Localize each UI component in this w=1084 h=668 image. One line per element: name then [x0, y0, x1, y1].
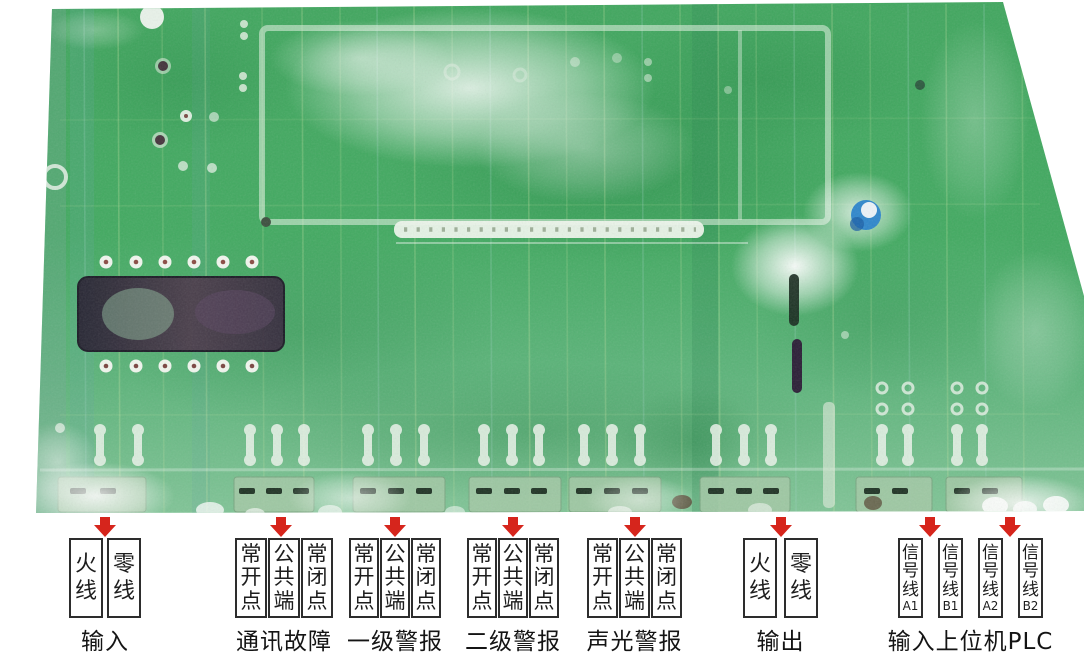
- terminal-box: 常开点: [349, 538, 379, 618]
- terminal-box: 常开点: [467, 538, 497, 618]
- terminal-box-sublabel: A2: [983, 600, 999, 612]
- down-arrow-icon: [269, 517, 293, 537]
- terminal-box-label: 公共端: [623, 543, 646, 614]
- terminal-box-label: 常闭点: [415, 543, 438, 614]
- terminal-group-sound-light-alarm: 常开点 公共端 常闭点 声光警报: [587, 516, 682, 668]
- down-arrow-icon: [93, 517, 117, 537]
- terminal-box-label: 信号线: [981, 544, 999, 599]
- terminal-box-label: 常闭点: [533, 543, 556, 614]
- terminal-box: 公共端: [619, 538, 650, 618]
- terminal-box: 常闭点: [301, 538, 333, 618]
- terminal-box-label: 常开点: [471, 543, 494, 614]
- terminal-box: 常开点: [235, 538, 267, 618]
- terminal-box-label: 常开点: [353, 543, 376, 614]
- terminal-box-label: 信号线: [1021, 544, 1039, 599]
- terminal-group-output: 火线 零线 输出: [743, 516, 818, 668]
- down-arrow-icon: [501, 517, 525, 537]
- terminal-box-label: 公共端: [273, 543, 296, 614]
- terminal-group-plc: 信号线A1 信号线B1 信号线A2 信号线B2 输入上位机PLC: [898, 516, 1043, 668]
- terminal-group-caption: 通讯故障: [236, 622, 332, 656]
- terminal-group-caption: 输入上位机PLC: [888, 622, 1054, 656]
- terminal-group-caption: 二级警报: [465, 622, 561, 656]
- wiring-diagram: 火线 零线 输入 常开点 公共端 常闭点 通讯故障 常开点 公共端 常闭点 一级…: [0, 0, 1084, 668]
- terminal-box-label: 火线: [74, 551, 98, 606]
- terminal-box-sublabel: B1: [943, 600, 959, 612]
- terminal-box-label: 公共端: [384, 543, 407, 614]
- terminal-box: 火线: [743, 538, 777, 618]
- terminal-box: 零线: [107, 538, 141, 618]
- terminal-box-label: 零线: [789, 551, 813, 606]
- terminal-box-sublabel: A1: [903, 600, 919, 612]
- terminal-box: 零线: [784, 538, 818, 618]
- terminal-group-caption: 声光警报: [587, 622, 683, 656]
- down-arrow-icon: [769, 517, 793, 537]
- terminal-box: 信号线A2: [978, 538, 1003, 618]
- terminal-box-label: 常闭点: [306, 543, 329, 614]
- terminal-box: 信号线B2: [1018, 538, 1043, 618]
- terminal-group-caption: 输出: [757, 622, 805, 656]
- terminal-group-alarm-level-2: 常开点 公共端 常闭点 二级警报: [467, 516, 559, 668]
- terminal-box-label: 公共端: [502, 543, 525, 614]
- terminal-box-sublabel: B2: [1023, 600, 1039, 612]
- terminal-box-label: 信号线: [901, 544, 919, 599]
- terminal-box: 公共端: [268, 538, 300, 618]
- photo-grain: [0, 0, 1084, 520]
- terminal-box: 常闭点: [529, 538, 559, 618]
- terminal-box: 常闭点: [651, 538, 682, 618]
- down-arrow-icon: [383, 517, 407, 537]
- down-arrow-icon: [918, 517, 942, 537]
- terminal-box: 信号线A1: [898, 538, 923, 618]
- terminal-group-alarm-level-1: 常开点 公共端 常闭点 一级警报: [349, 516, 441, 668]
- terminal-group-input: 火线 零线 输入: [69, 516, 141, 668]
- terminal-box-label: 常开点: [240, 543, 263, 614]
- terminal-box-label: 火线: [748, 551, 772, 606]
- terminal-group-comm-fault: 常开点 公共端 常闭点 通讯故障: [235, 516, 333, 668]
- terminal-box-label: 零线: [112, 551, 136, 606]
- terminal-group-caption: 一级警报: [347, 622, 443, 656]
- terminal-box-label: 常开点: [591, 543, 614, 614]
- terminal-box-label: 常闭点: [655, 543, 678, 614]
- terminal-box: 公共端: [380, 538, 410, 618]
- down-arrow-icon: [623, 517, 647, 537]
- pcb-photo: [0, 0, 1084, 520]
- terminal-box: 火线: [69, 538, 103, 618]
- down-arrow-icon: [998, 517, 1022, 537]
- terminal-box: 常闭点: [411, 538, 441, 618]
- terminal-box: 信号线B1: [938, 538, 963, 618]
- terminal-box-label: 信号线: [941, 544, 959, 599]
- pcb-board: [0, 0, 1084, 520]
- terminal-box: 常开点: [587, 538, 618, 618]
- terminal-box: 公共端: [498, 538, 528, 618]
- terminal-group-caption: 输入: [81, 622, 129, 656]
